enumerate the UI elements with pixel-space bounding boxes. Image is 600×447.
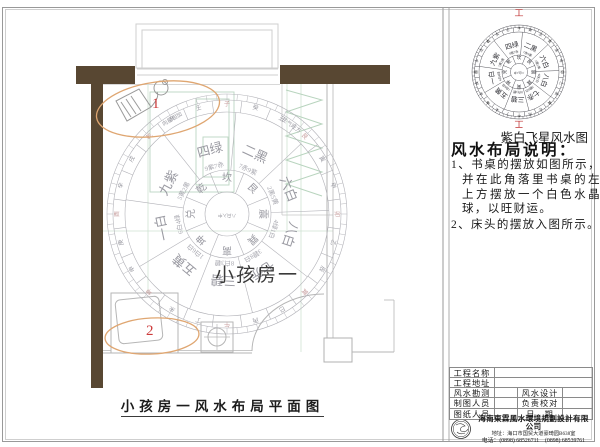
svg-text:离: 离 — [222, 244, 232, 257]
svg-text:丁: 丁 — [505, 111, 510, 116]
desk-lamp-icon — [116, 80, 168, 122]
flying-star-compass-small: 子癸丑艮寅甲卯乙辰巽巳丙午丁未坤申庚酉辛戌乾亥壬四绿9紫7赤二黑7赤9紫六白2黑… — [472, 25, 566, 119]
svg-text:震: 震 — [530, 70, 536, 75]
svg-text:坤: 坤 — [193, 232, 209, 248]
title-block-label: 工程地址 — [450, 378, 495, 388]
svg-text:坎: 坎 — [517, 54, 522, 61]
title-block-label: 制图人员 — [450, 398, 495, 409]
svg-text:9紫7赤: 9紫7赤 — [204, 160, 225, 173]
svg-text:乾: 乾 — [193, 180, 209, 196]
svg-text:三碧: 三碧 — [510, 95, 524, 105]
wall-top-left — [76, 66, 135, 84]
svg-text:八白入中: 八白入中 — [218, 212, 236, 219]
title-block-label: 风水设计 — [518, 388, 563, 398]
svg-text:未: 未 — [494, 106, 500, 112]
svg-text:2黑5黄: 2黑5黄 — [265, 185, 281, 207]
svg-text:寅: 寅 — [317, 154, 327, 163]
company-phone: 电话：(0898) 68526711 (0898) 68539761 — [475, 438, 592, 444]
svg-text:子: 子 — [224, 101, 230, 108]
balcony-window — [136, 24, 278, 75]
svg-text:辰: 辰 — [553, 91, 558, 96]
svg-text:丑: 丑 — [538, 32, 543, 37]
wall-left — [91, 84, 103, 388]
svg-text:戌: 戌 — [478, 47, 484, 53]
door-column — [324, 338, 352, 362]
svg-text:申: 申 — [127, 264, 137, 273]
title-block-value — [495, 388, 518, 398]
title-block-value — [563, 388, 593, 398]
svg-text:兑: 兑 — [184, 209, 197, 219]
plan-title: 小孩房一风水布局平面图 — [100, 395, 345, 415]
title-block-label: 工程名称 — [450, 368, 495, 378]
svg-text:丁: 丁 — [195, 316, 203, 324]
svg-text:六白: 六白 — [277, 174, 301, 204]
svg-text:艮: 艮 — [245, 181, 261, 197]
svg-text:丙: 丙 — [252, 316, 260, 324]
svg-text:甲: 甲 — [329, 182, 337, 190]
instruction-item-2: 2、床头的摆放入图所示。 — [451, 218, 600, 233]
title-block: 工程名称 工程地址 风水勘测 风水设计 制图人员 负责校对 图纸人员 日 期 — [449, 367, 593, 420]
wall-top-right — [280, 65, 390, 84]
room-label: 小孩房一 — [215, 260, 299, 287]
company-name: 海南東霖風水環境規劃設計有限公司 — [475, 415, 592, 432]
svg-text:卯: 卯 — [333, 211, 341, 217]
drawing-sheet: 子癸丑艮寅甲卯乙辰巽巳丙午丁未坤申庚酉辛戌乾亥壬四绿9紫7赤二黑7赤9紫六白2黑… — [0, 0, 600, 447]
svg-text:巳: 巳 — [538, 107, 543, 112]
luopan-compass-large: 子癸丑艮寅甲卯乙辰巽巳丙午丁未坤申庚酉辛戌乾亥壬四绿9紫7赤二黑7赤9紫六白2黑… — [107, 94, 347, 334]
title-block-label: 风水勘测 — [450, 388, 495, 398]
svg-text:巽: 巽 — [245, 232, 261, 248]
svg-text:九紫: 九紫 — [156, 168, 181, 198]
svg-text:戌: 戌 — [127, 154, 137, 163]
svg-text:午: 午 — [224, 320, 230, 328]
svg-text:午: 午 — [517, 113, 521, 118]
svg-text:巽: 巽 — [525, 78, 533, 86]
svg-text:酉: 酉 — [114, 211, 121, 217]
svg-text:艮: 艮 — [525, 58, 533, 66]
marker-number-1: 1 — [152, 96, 160, 113]
svg-text:乙: 乙 — [329, 239, 337, 247]
svg-text:八白入中: 八白入中 — [513, 71, 524, 75]
title-block-value — [495, 378, 593, 388]
svg-text:4绿1白: 4绿1白 — [267, 219, 282, 240]
title-block-label: 负责校对 — [518, 398, 563, 409]
bed — [111, 293, 178, 353]
marker-number-2: 2 — [146, 323, 154, 340]
facing-direction-mark: 工 — [514, 8, 523, 18]
svg-text:生气旺方: 生气旺方 — [280, 115, 303, 135]
instruction-item-1: 1、书桌的摆放如图所示，并在此角落里书桌的左上方摆放一个白色水晶球，以旺财运。 — [451, 158, 600, 217]
svg-text:壬: 壬 — [505, 27, 510, 33]
title-block-value — [563, 398, 593, 409]
svg-text:卯: 卯 — [560, 70, 565, 74]
svg-text:二黑: 二黑 — [240, 141, 270, 166]
svg-text:癸: 癸 — [528, 27, 533, 33]
svg-text:乙: 乙 — [558, 81, 564, 86]
svg-text:子: 子 — [517, 26, 521, 31]
svg-text:坎: 坎 — [222, 171, 232, 184]
company-address: 地址：海口市国贸大道豪琦园B638室 — [475, 432, 592, 438]
svg-text:八白: 八白 — [279, 220, 301, 249]
title-block-value — [495, 368, 593, 378]
svg-text:一白: 一白 — [152, 214, 172, 243]
svg-text:庚: 庚 — [474, 80, 480, 85]
svg-text:震: 震 — [257, 209, 269, 219]
svg-text:四绿: 四绿 — [195, 139, 224, 160]
instructions-title: 风水布局说明： — [451, 138, 577, 160]
door — [252, 84, 352, 362]
svg-text:辛: 辛 — [474, 58, 480, 63]
company-footer: 海南東霖風水環境規劃設計有限公司 地址：海口市国贸大道豪琦园B638室 电话：(… — [449, 419, 592, 440]
svg-text:兑: 兑 — [501, 69, 508, 74]
svg-text:离: 离 — [516, 83, 521, 90]
svg-text:8白3碧: 8白3碧 — [512, 90, 523, 96]
title-block-value — [495, 398, 518, 409]
